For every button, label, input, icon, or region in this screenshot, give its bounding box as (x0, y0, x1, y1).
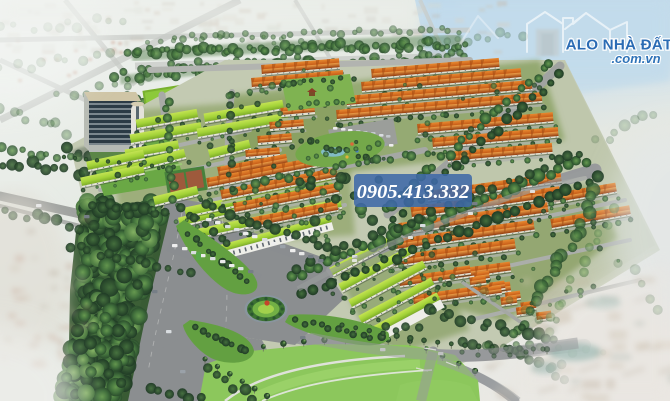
svg-text:0905.413.332: 0905.413.332 (357, 181, 470, 203)
svg-text:.com.vn: .com.vn (611, 51, 660, 66)
